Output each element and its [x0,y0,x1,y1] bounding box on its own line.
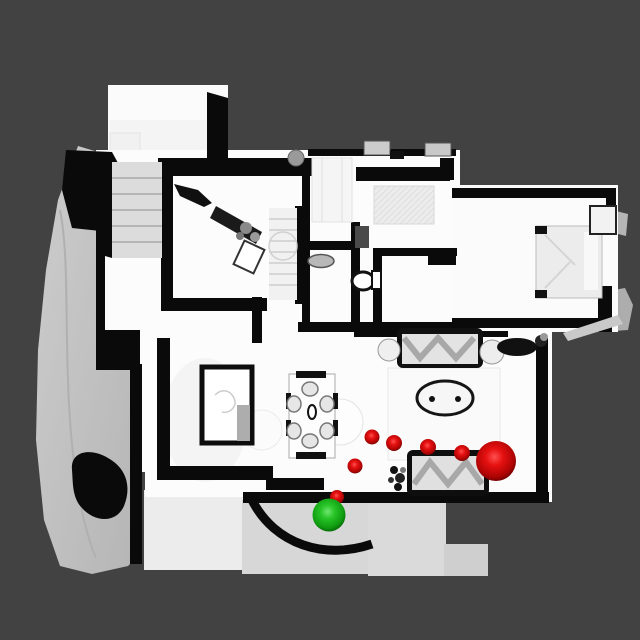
wall-segment [157,338,170,478]
mesh-shape [388,477,394,483]
mesh-shape [390,466,398,474]
toilet-tank [372,271,381,289]
chair-icon [302,382,318,396]
side-table-icon [378,339,400,361]
plant-icon [240,222,252,234]
couch-icon [397,328,483,368]
patio-small [444,544,488,576]
stairwell-icon [269,208,297,300]
wall-segment [243,492,549,503]
waypoint-path-point [365,430,380,445]
cabinet-icon [390,151,404,159]
stairs-icon [112,162,162,258]
wall-segment [302,158,310,332]
mesh-shape [540,333,548,341]
chair-icon [320,396,334,412]
floorplan-render [0,0,640,640]
waypoint-path-point [420,439,436,455]
mesh-shape [395,473,405,483]
toilet-icon [352,272,374,290]
mesh-shape [535,290,547,298]
wall-segment [440,158,454,180]
mesh-shape [237,405,250,441]
mesh-shape [535,226,547,234]
chair-icon [287,423,301,439]
mesh-shape [296,452,326,459]
wall-segment [356,167,450,181]
roof-wedge-right [207,92,228,160]
bed-icon [535,226,602,298]
mesh-shape [269,208,297,300]
mesh-shape [400,467,406,473]
wall-segment [161,298,267,311]
waypoint-path-point [386,435,402,451]
wall-segment [310,241,353,250]
mesh-shape [394,483,402,491]
waypoint-goal [476,441,516,481]
stair-void [355,226,369,248]
cabinet-icon [364,141,390,155]
mesh-shape [455,396,461,402]
vase-icon [308,405,316,419]
mesh-shape [584,232,598,290]
scene-viewport [0,0,640,640]
plant-icon [250,232,260,242]
wall-segment [157,466,273,480]
wall-segment [266,478,324,490]
patio-right [368,498,446,576]
waypoint-path-point [454,445,470,461]
bed-icon-small [374,186,434,224]
wardrobe-icon [312,158,352,222]
cabinet-icon [425,143,451,156]
wall-segment [130,364,142,564]
plant-icon [236,232,244,240]
wall-segment [428,250,456,265]
wall-segment [161,160,173,310]
tv-icon [202,367,252,443]
waypoint-start [313,499,346,532]
waypoint-path-point [348,459,363,474]
coffee-table-icon [417,381,473,415]
chair-icon [302,434,318,448]
mesh-shape [417,381,473,415]
chair-icon [287,396,301,412]
wall-segment [536,338,548,500]
plant-icon [288,150,304,166]
chair-icon [320,423,334,439]
mesh-shape [497,338,537,356]
wall-segment [452,188,616,198]
mesh-shape [429,396,435,402]
wall-segment [252,297,262,343]
sink-icon [308,255,334,268]
nightstand-icon [590,206,616,234]
mesh-shape [296,371,326,378]
dining-table-icon [286,371,338,459]
patio-white [144,490,244,570]
